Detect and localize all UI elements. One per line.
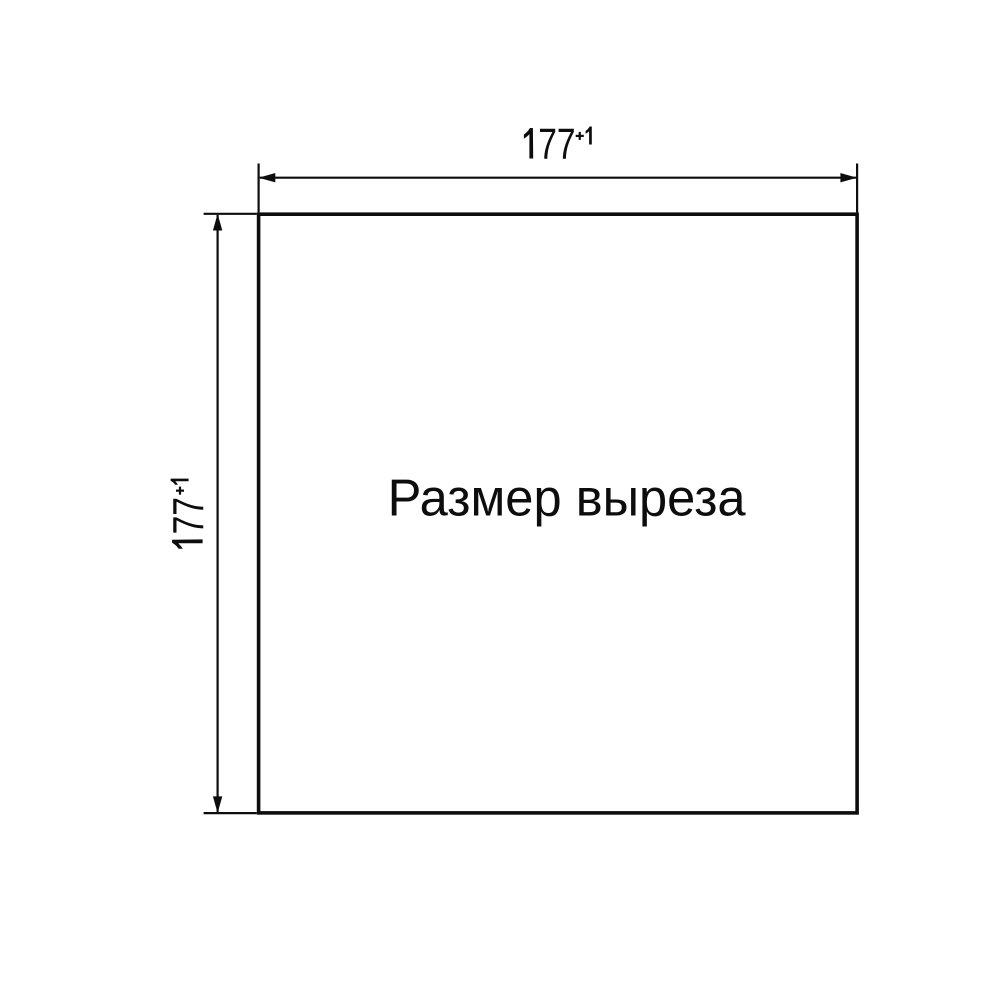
svg-text:Размер выреза: Размер выреза [388,469,746,527]
svg-text:77: 77 [165,497,213,534]
svg-text:77: 77 [538,121,575,169]
